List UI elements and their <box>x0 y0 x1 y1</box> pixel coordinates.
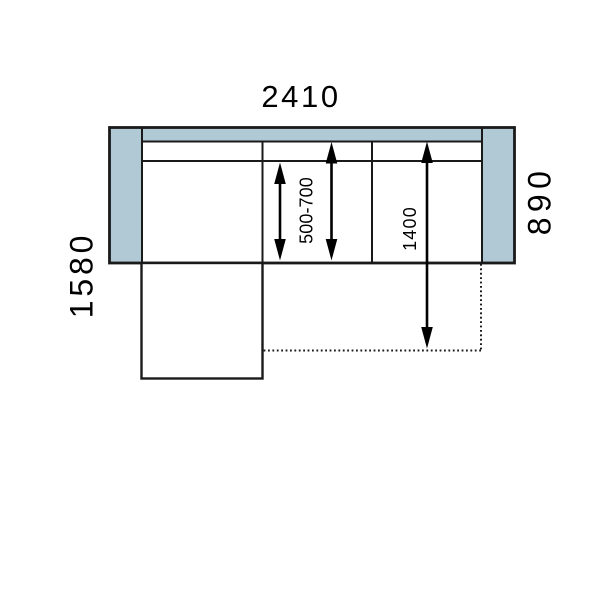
svg-text:2410: 2410 <box>261 79 340 114</box>
svg-text:500-700: 500-700 <box>297 177 317 244</box>
svg-text:1580: 1580 <box>64 232 100 318</box>
svg-text:890: 890 <box>522 166 558 236</box>
svg-text:1400: 1400 <box>400 206 420 251</box>
